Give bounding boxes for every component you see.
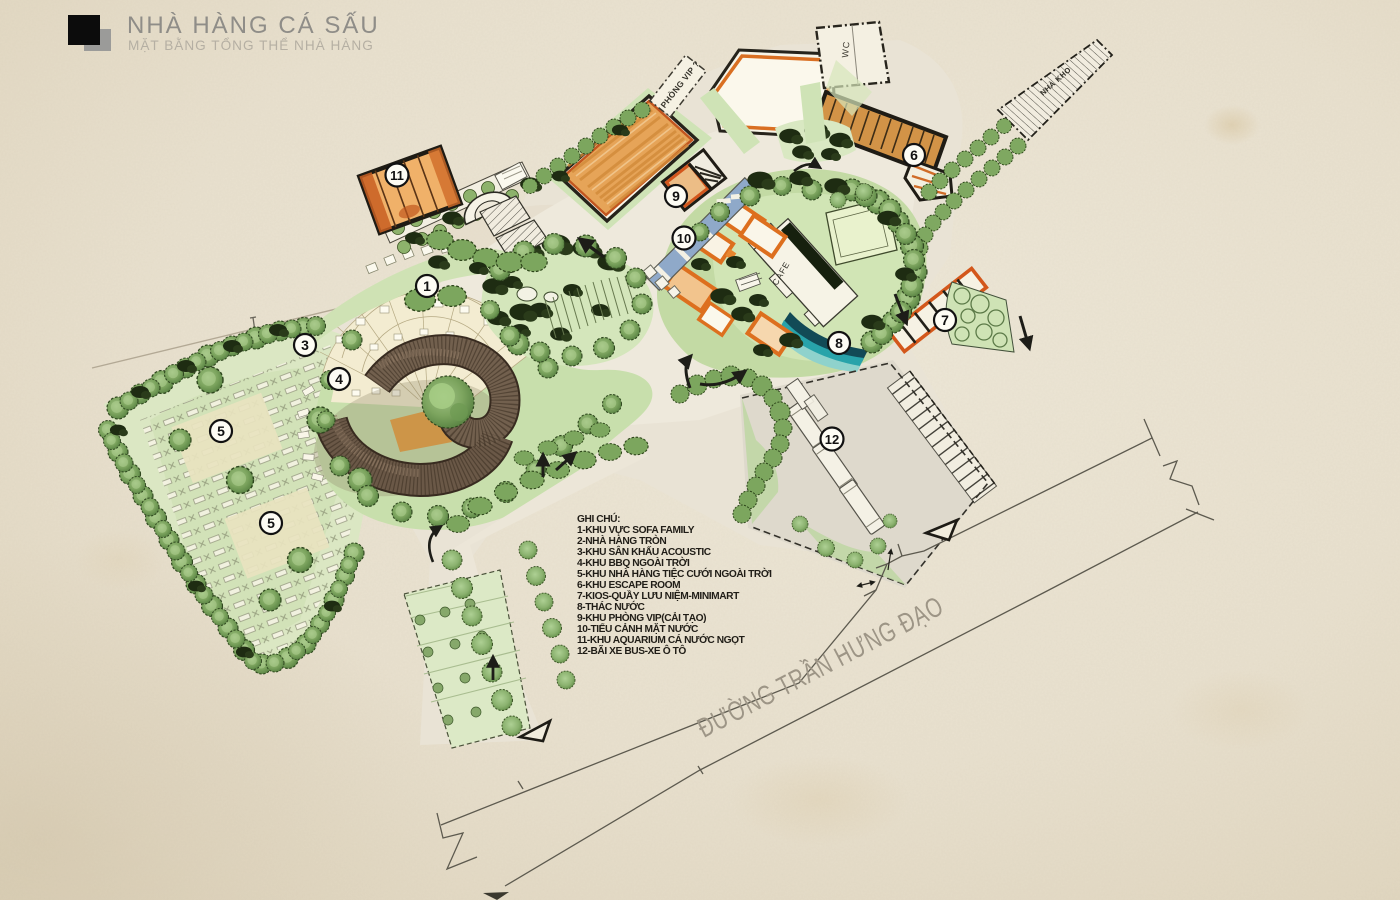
svg-text:MẶT BẰNG TỔNG THỂ NHÀ HÀNG: MẶT BẰNG TỔNG THỂ NHÀ HÀNG bbox=[128, 38, 374, 53]
svg-text:12: 12 bbox=[825, 432, 839, 447]
svg-text:4: 4 bbox=[335, 371, 343, 387]
svg-text:6-KHU ESCAPE ROOM: 6-KHU ESCAPE ROOM bbox=[577, 580, 680, 591]
svg-text:WC: WC bbox=[840, 40, 851, 58]
svg-text:1-KHU VỰC SOFA FAMILY: 1-KHU VỰC SOFA FAMILY bbox=[577, 525, 695, 536]
svg-text:8: 8 bbox=[835, 335, 843, 351]
svg-text:GHI CHÚ:: GHI CHÚ: bbox=[577, 512, 620, 525]
svg-text:11-KHU AQUARIUM CÁ NƯỚC NGỌT: 11-KHU AQUARIUM CÁ NƯỚC NGỌT bbox=[577, 633, 746, 646]
svg-text:10: 10 bbox=[677, 231, 691, 246]
svg-text:9: 9 bbox=[672, 188, 680, 204]
svg-text:6: 6 bbox=[910, 147, 918, 163]
svg-text:1: 1 bbox=[423, 278, 431, 294]
svg-text:10-TIỂU CẢNH MẶT NƯỚC: 10-TIỂU CẢNH MẶT NƯỚC bbox=[577, 622, 699, 635]
svg-text:2-NHÀ HÀNG TRÒN: 2-NHÀ HÀNG TRÒN bbox=[577, 534, 666, 547]
svg-text:5: 5 bbox=[217, 423, 225, 439]
svg-text:7: 7 bbox=[941, 312, 949, 328]
svg-text:3-KHU SÂN KHẤU ACOUSTIC: 3-KHU SÂN KHẤU ACOUSTIC bbox=[577, 545, 712, 558]
svg-text:9-KHU PHÒNG VIP(CẢI TẠO): 9-KHU PHÒNG VIP(CẢI TẠO) bbox=[577, 611, 706, 624]
svg-text:NHÀ HÀNG CÁ SẤU: NHÀ HÀNG CÁ SẤU bbox=[127, 11, 380, 39]
svg-text:12-BÃI XE BUS-XE Ô TÔ: 12-BÃI XE BUS-XE Ô TÔ bbox=[577, 644, 686, 657]
svg-text:8-THÁC NƯỚC: 8-THÁC NƯỚC bbox=[577, 600, 645, 613]
svg-text:11: 11 bbox=[390, 168, 404, 183]
svg-text:4-KHU BBQ NGOÀI TRỜI: 4-KHU BBQ NGOÀI TRỜI bbox=[577, 556, 690, 569]
svg-text:3: 3 bbox=[301, 337, 309, 353]
svg-text:5-KHU NHÀ HÀNG TIỆC CƯỚI NGOÀI: 5-KHU NHÀ HÀNG TIỆC CƯỚI NGOÀI TRỜI bbox=[577, 567, 772, 580]
svg-text:7-KIOS-QUẦY LƯU NIỆM-MINIMART: 7-KIOS-QUẦY LƯU NIỆM-MINIMART bbox=[577, 589, 740, 602]
svg-text:5: 5 bbox=[267, 515, 275, 531]
